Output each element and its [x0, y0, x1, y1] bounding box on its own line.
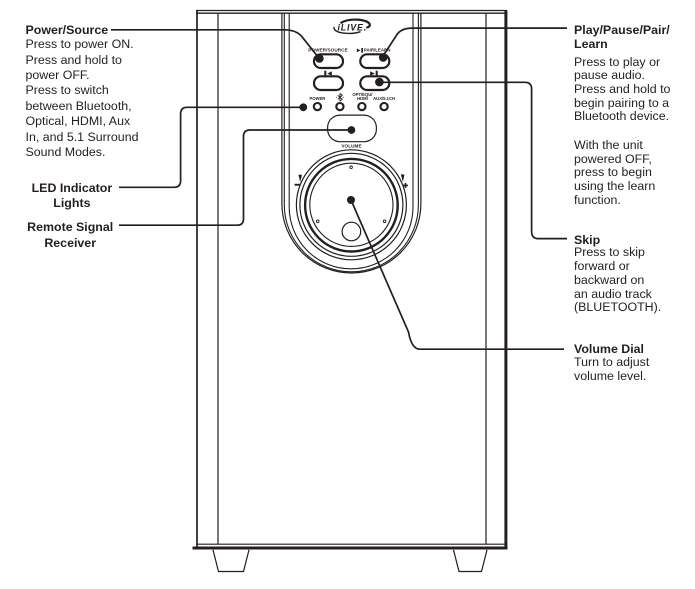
- svg-text:AUX/5.1CH: AUX/5.1CH: [373, 96, 395, 101]
- svg-text:iLIVE.: iLIVE.: [338, 23, 367, 33]
- svg-text:POWER: POWER: [309, 96, 325, 101]
- svg-text:VOLUME: VOLUME: [341, 144, 361, 149]
- svg-text:HDMI: HDMI: [357, 96, 368, 101]
